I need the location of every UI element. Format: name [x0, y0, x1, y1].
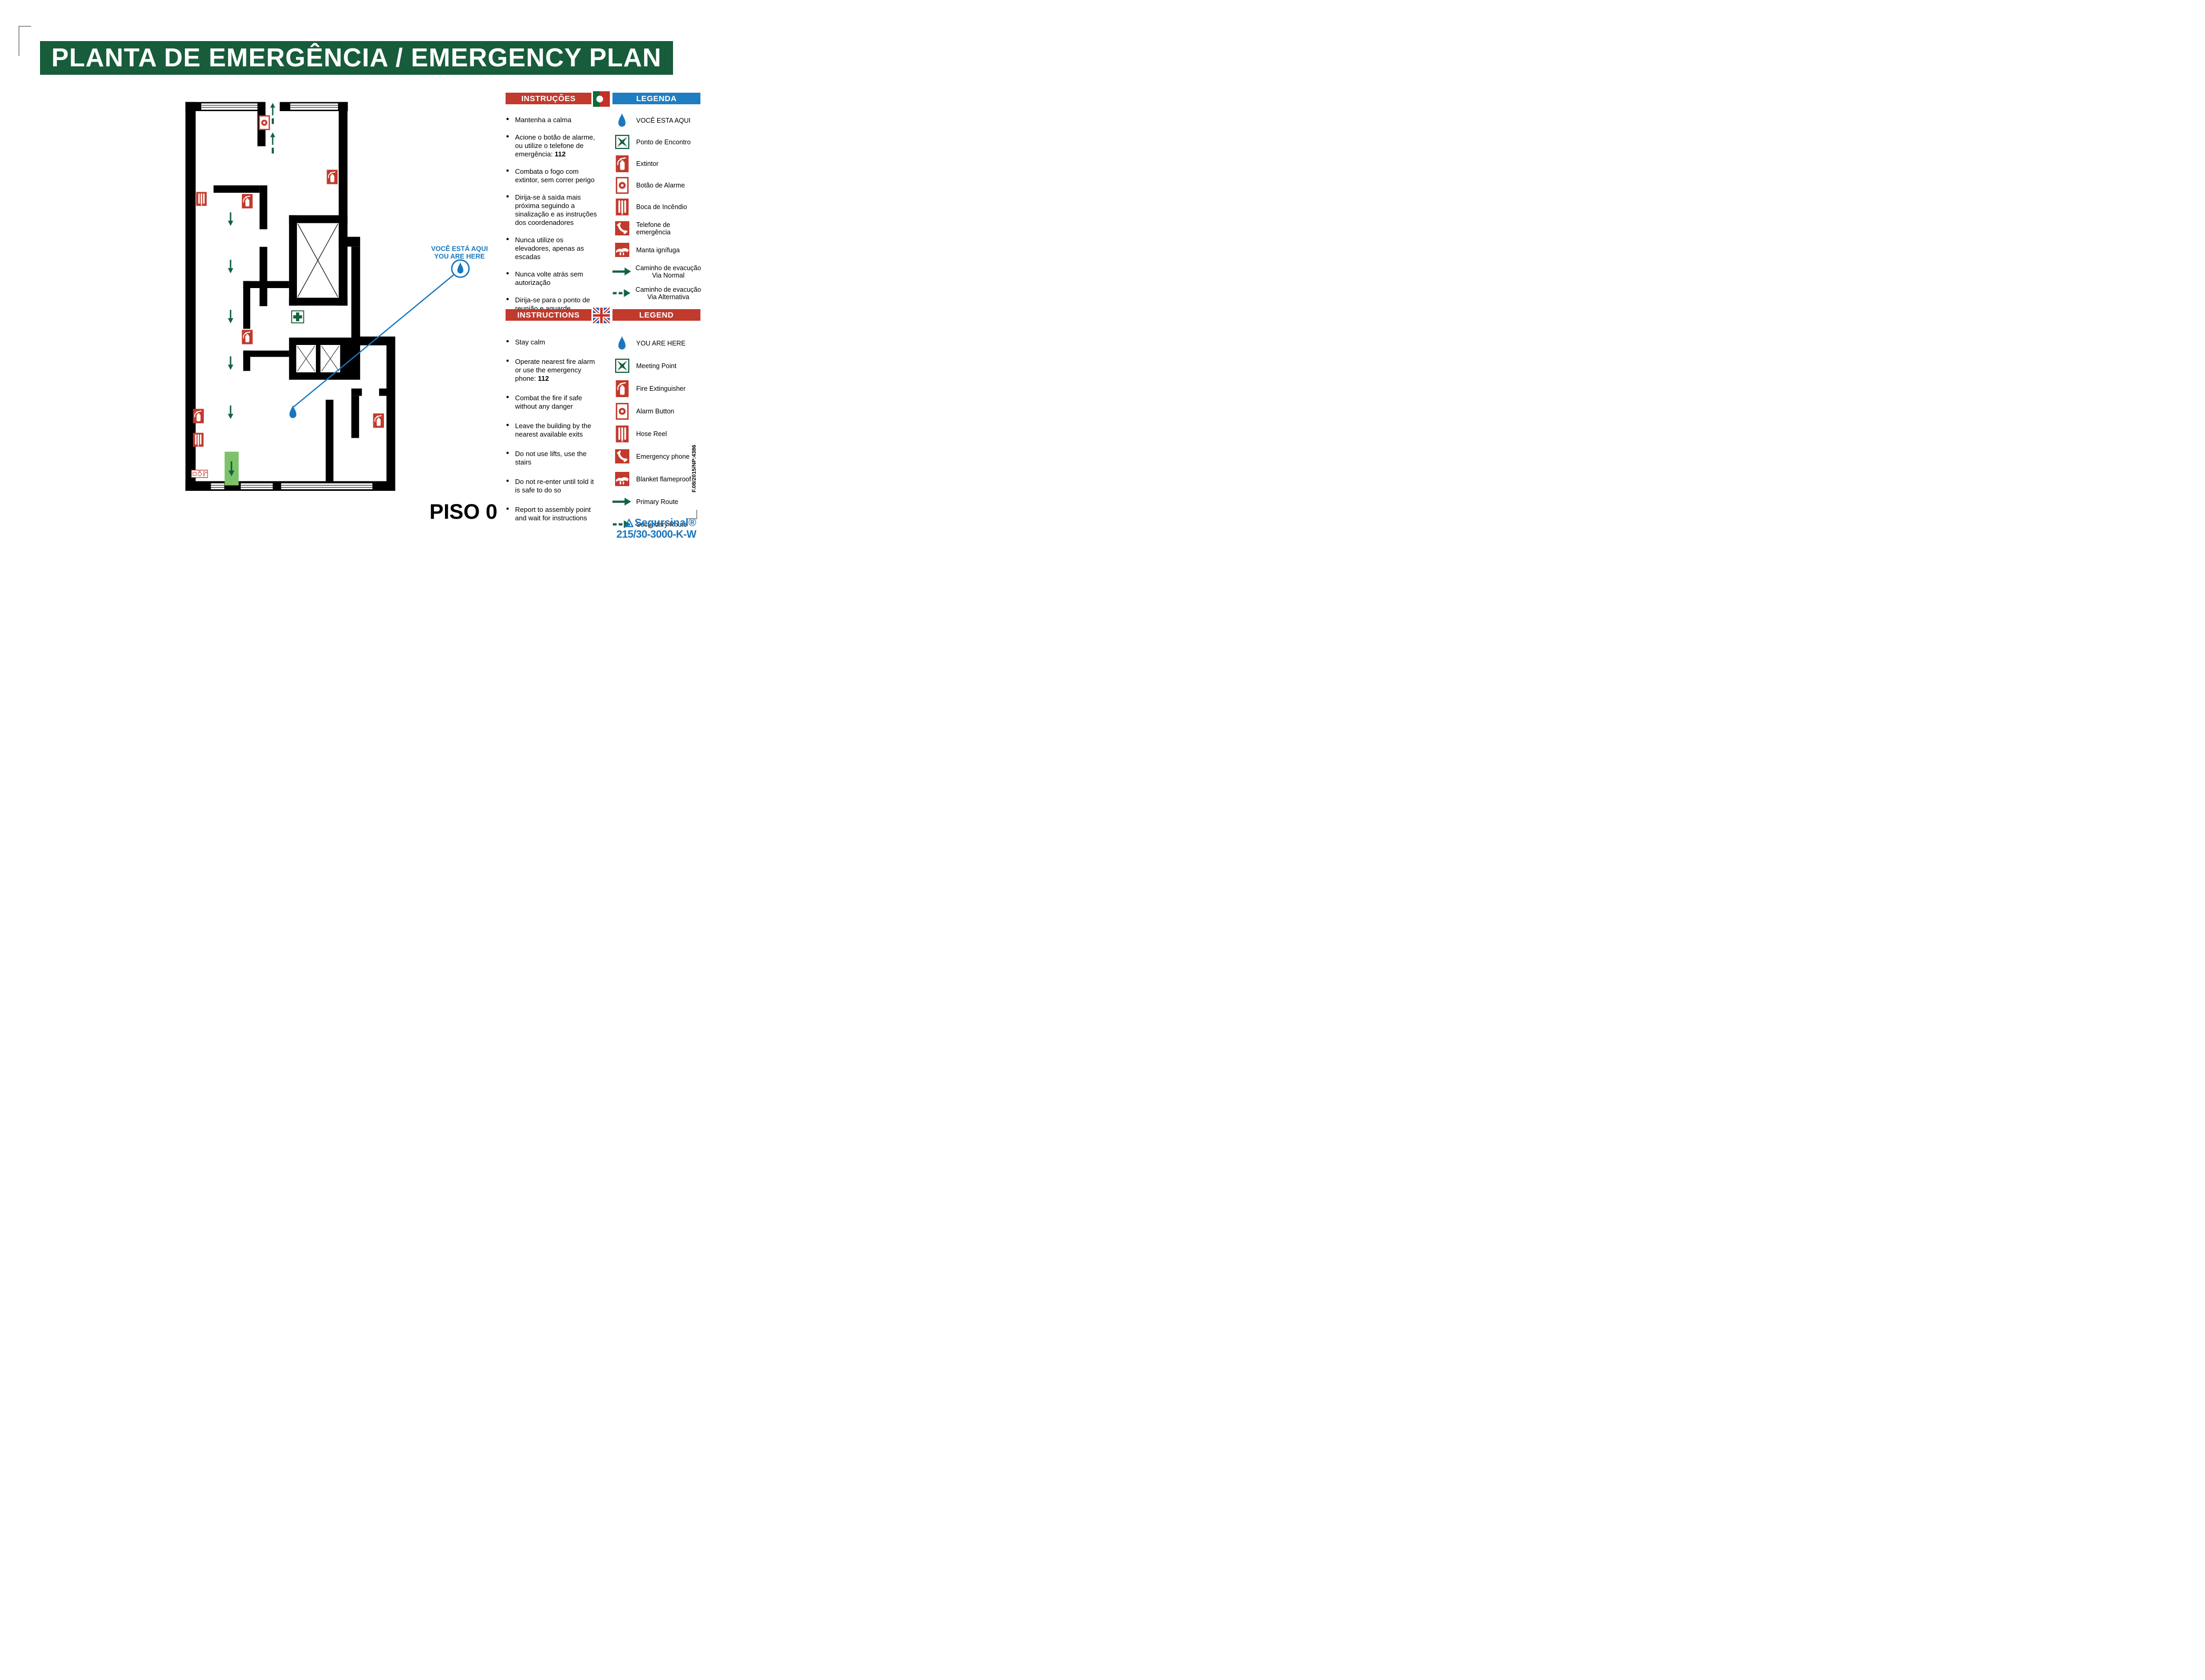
legend-label: Primary Route: [636, 498, 678, 506]
route-arrow-down: [228, 212, 233, 226]
en-legend-header: LEGEND: [612, 309, 700, 321]
instruction-item: Do not use lifts, use the stairs: [505, 450, 600, 467]
plan-hose-icon: [193, 433, 204, 447]
you-are-here-marker: [290, 405, 296, 418]
route-arrow-down: [228, 260, 233, 273]
callout-line-en: YOU ARE HERE: [434, 253, 485, 260]
meeting-icon: [612, 135, 631, 149]
brand-block: Segursinal® 215/30-3000-K-W: [606, 517, 696, 540]
floor-plan: VOCÊ ESTÁ AQUI YOU ARE HERE: [183, 98, 492, 493]
legend-item: YOU ARE HERE: [612, 332, 705, 354]
legend-label: Telefone de emergência: [636, 221, 705, 236]
page-title: PLANTA DE EMERGÊNCIA / EMERGENCY PLAN: [40, 41, 673, 75]
route-solid-icon: [612, 267, 631, 276]
instruction-item: Mantenha a calma: [505, 116, 600, 124]
callout-line-pt: VOCÊ ESTÁ AQUI: [431, 244, 488, 252]
instruction-item: Combat the fire if safe without any dang…: [505, 394, 600, 411]
legend-item: Extintor: [612, 153, 705, 174]
pt-legend-header: LEGENDA: [612, 93, 700, 104]
blanket-icon: [612, 243, 631, 257]
route-arrow-dash: [272, 148, 274, 154]
instruction-item: Dirija-se à saìda mais próxima seguindo …: [505, 193, 600, 227]
route-arrow-down: [228, 357, 233, 370]
route-arrow-up: [270, 132, 275, 145]
ext-icon: [612, 380, 631, 397]
instruction-item: Nunca volte atrás sem autorização: [505, 270, 600, 287]
pt-instructions-header: INSTRUÇÕES: [506, 93, 591, 104]
legend-label: Alarm Button: [636, 408, 674, 415]
legend-item: Caminho de evacuçãoVia Alternativa: [612, 282, 705, 304]
pt-legend-list: VOCÊ ESTA AQUIPonto de EncontroExtintorB…: [612, 110, 705, 304]
ext-icon: [612, 155, 631, 172]
hose-icon: [612, 426, 631, 442]
route-arrow-up: [270, 103, 275, 115]
uk-flag-icon: [593, 308, 610, 323]
legend-label: Fire Extinguisher: [636, 385, 686, 392]
en-instructions-header: INSTRUCTIONS: [506, 309, 591, 321]
instruction-item: Report to assembly point and wait for in…: [505, 506, 600, 522]
legend-item: Meeting Point: [612, 354, 705, 377]
brand-name: Segursinal®: [635, 517, 696, 529]
plan-alarm-icon: [259, 115, 270, 130]
crop-mark-top-left: [18, 26, 31, 56]
route-dashed-icon: [612, 289, 631, 298]
route-arrow-dash: [272, 118, 274, 124]
route-solid-icon: [612, 497, 631, 506]
legend-label: Manta ignífuga: [636, 246, 680, 254]
instruction-item: Combata o fogo com extintor, sem correr …: [505, 167, 600, 184]
plan-ext-icon: [193, 409, 204, 423]
legend-label: Blanket flameproof: [636, 476, 691, 483]
hose-icon: [612, 199, 631, 215]
legend-item: Primary Route: [612, 490, 705, 513]
legend-item: Ponto de Encontro: [612, 131, 705, 153]
en-instructions-list: Stay calmOperate nearest fire alarm or u…: [505, 338, 600, 533]
walls: [185, 102, 395, 491]
instruction-item: Acione o botão de alarme, ou utilize o t…: [505, 133, 600, 159]
legend-label: Hose Reel: [636, 430, 667, 438]
legend-item: Caminho de evacuçãoVia Normal: [612, 261, 705, 282]
phone-icon: [612, 221, 631, 235]
instruction-item: Leave the building by the nearest availa…: [505, 422, 600, 439]
blanket-icon: [612, 472, 631, 486]
plan-hose-icon: [196, 192, 207, 205]
plan-signs-icon: [191, 470, 207, 478]
you-are-here-callout: VOCÊ ESTÁ AQUI YOU ARE HERE: [431, 244, 488, 277]
legend-item: Botão de Alarme: [612, 174, 705, 196]
legend-item: VOCÊ ESTA AQUI: [612, 110, 705, 131]
droplet-icon: [612, 335, 631, 351]
legend-label: Boca de Incêndio: [636, 203, 687, 211]
en-legend-list: YOU ARE HEREMeeting PointFire Extinguish…: [612, 332, 705, 536]
document-number: F.08/2015/NP:4386: [691, 445, 697, 492]
plan-ext-icon: [373, 413, 384, 428]
brand-ref: 215/30-3000-K-W: [606, 529, 696, 540]
portugal-flag-icon: [593, 91, 610, 107]
pt-instructions-list: Mantenha a calmaAcione o botão de alarme…: [505, 116, 600, 330]
stairwell-shaft: [298, 224, 338, 297]
legend-label: VOCÊ ESTA AQUI: [636, 117, 690, 124]
legend-label: Caminho de evacuçãoVia Normal: [631, 264, 705, 279]
plan-firstaid-icon: [292, 311, 304, 323]
legend-item: Telefone de emergência: [612, 218, 705, 239]
plan-ext-icon: [242, 330, 253, 344]
plan-route-arrows: [228, 103, 275, 476]
legend-item: Boca de Incêndio: [612, 196, 705, 218]
plan-ext-icon: [327, 170, 338, 184]
alarm-icon: [612, 403, 631, 420]
emergency-plan-page: PLANTA DE EMERGÊNCIA / EMERGENCY PLAN: [0, 0, 735, 560]
droplet-icon: [612, 113, 631, 129]
instruction-item: Nunca utilize os elevadores, apenas as e…: [505, 236, 600, 261]
legend-label: YOU ARE HERE: [636, 340, 686, 347]
plan-ext-icon: [242, 194, 253, 208]
legend-item: Fire Extinguisher: [612, 377, 705, 400]
instruction-item: Stay calm: [505, 338, 600, 347]
route-arrow-down: [228, 406, 233, 419]
route-arrow-down: [228, 310, 233, 323]
legend-item: Alarm Button: [612, 400, 705, 422]
alarm-icon: [612, 177, 631, 194]
floor-label: PISO 0: [406, 500, 521, 524]
instruction-item: Operate nearest fire alarm or use the em…: [505, 358, 600, 383]
legend-item: Hose Reel: [612, 422, 705, 445]
legend-item: Manta ignífuga: [612, 239, 705, 261]
meeting-icon: [612, 359, 631, 373]
legend-label: Caminho de evacuçãoVia Alternativa: [631, 286, 705, 301]
legend-label: Botão de Alarme: [636, 182, 685, 189]
segursinal-logo-icon: [625, 519, 634, 528]
legend-label: Meeting Point: [636, 362, 676, 370]
you-are-here-droplet-icon: [290, 405, 296, 418]
legend-label: Ponto de Encontro: [636, 139, 691, 146]
legend-label: Emergency phone: [636, 453, 689, 460]
phone-icon: [612, 449, 631, 463]
legend-label: Extintor: [636, 160, 658, 167]
instruction-item: Do not re-enter until told it is safe to…: [505, 478, 600, 495]
